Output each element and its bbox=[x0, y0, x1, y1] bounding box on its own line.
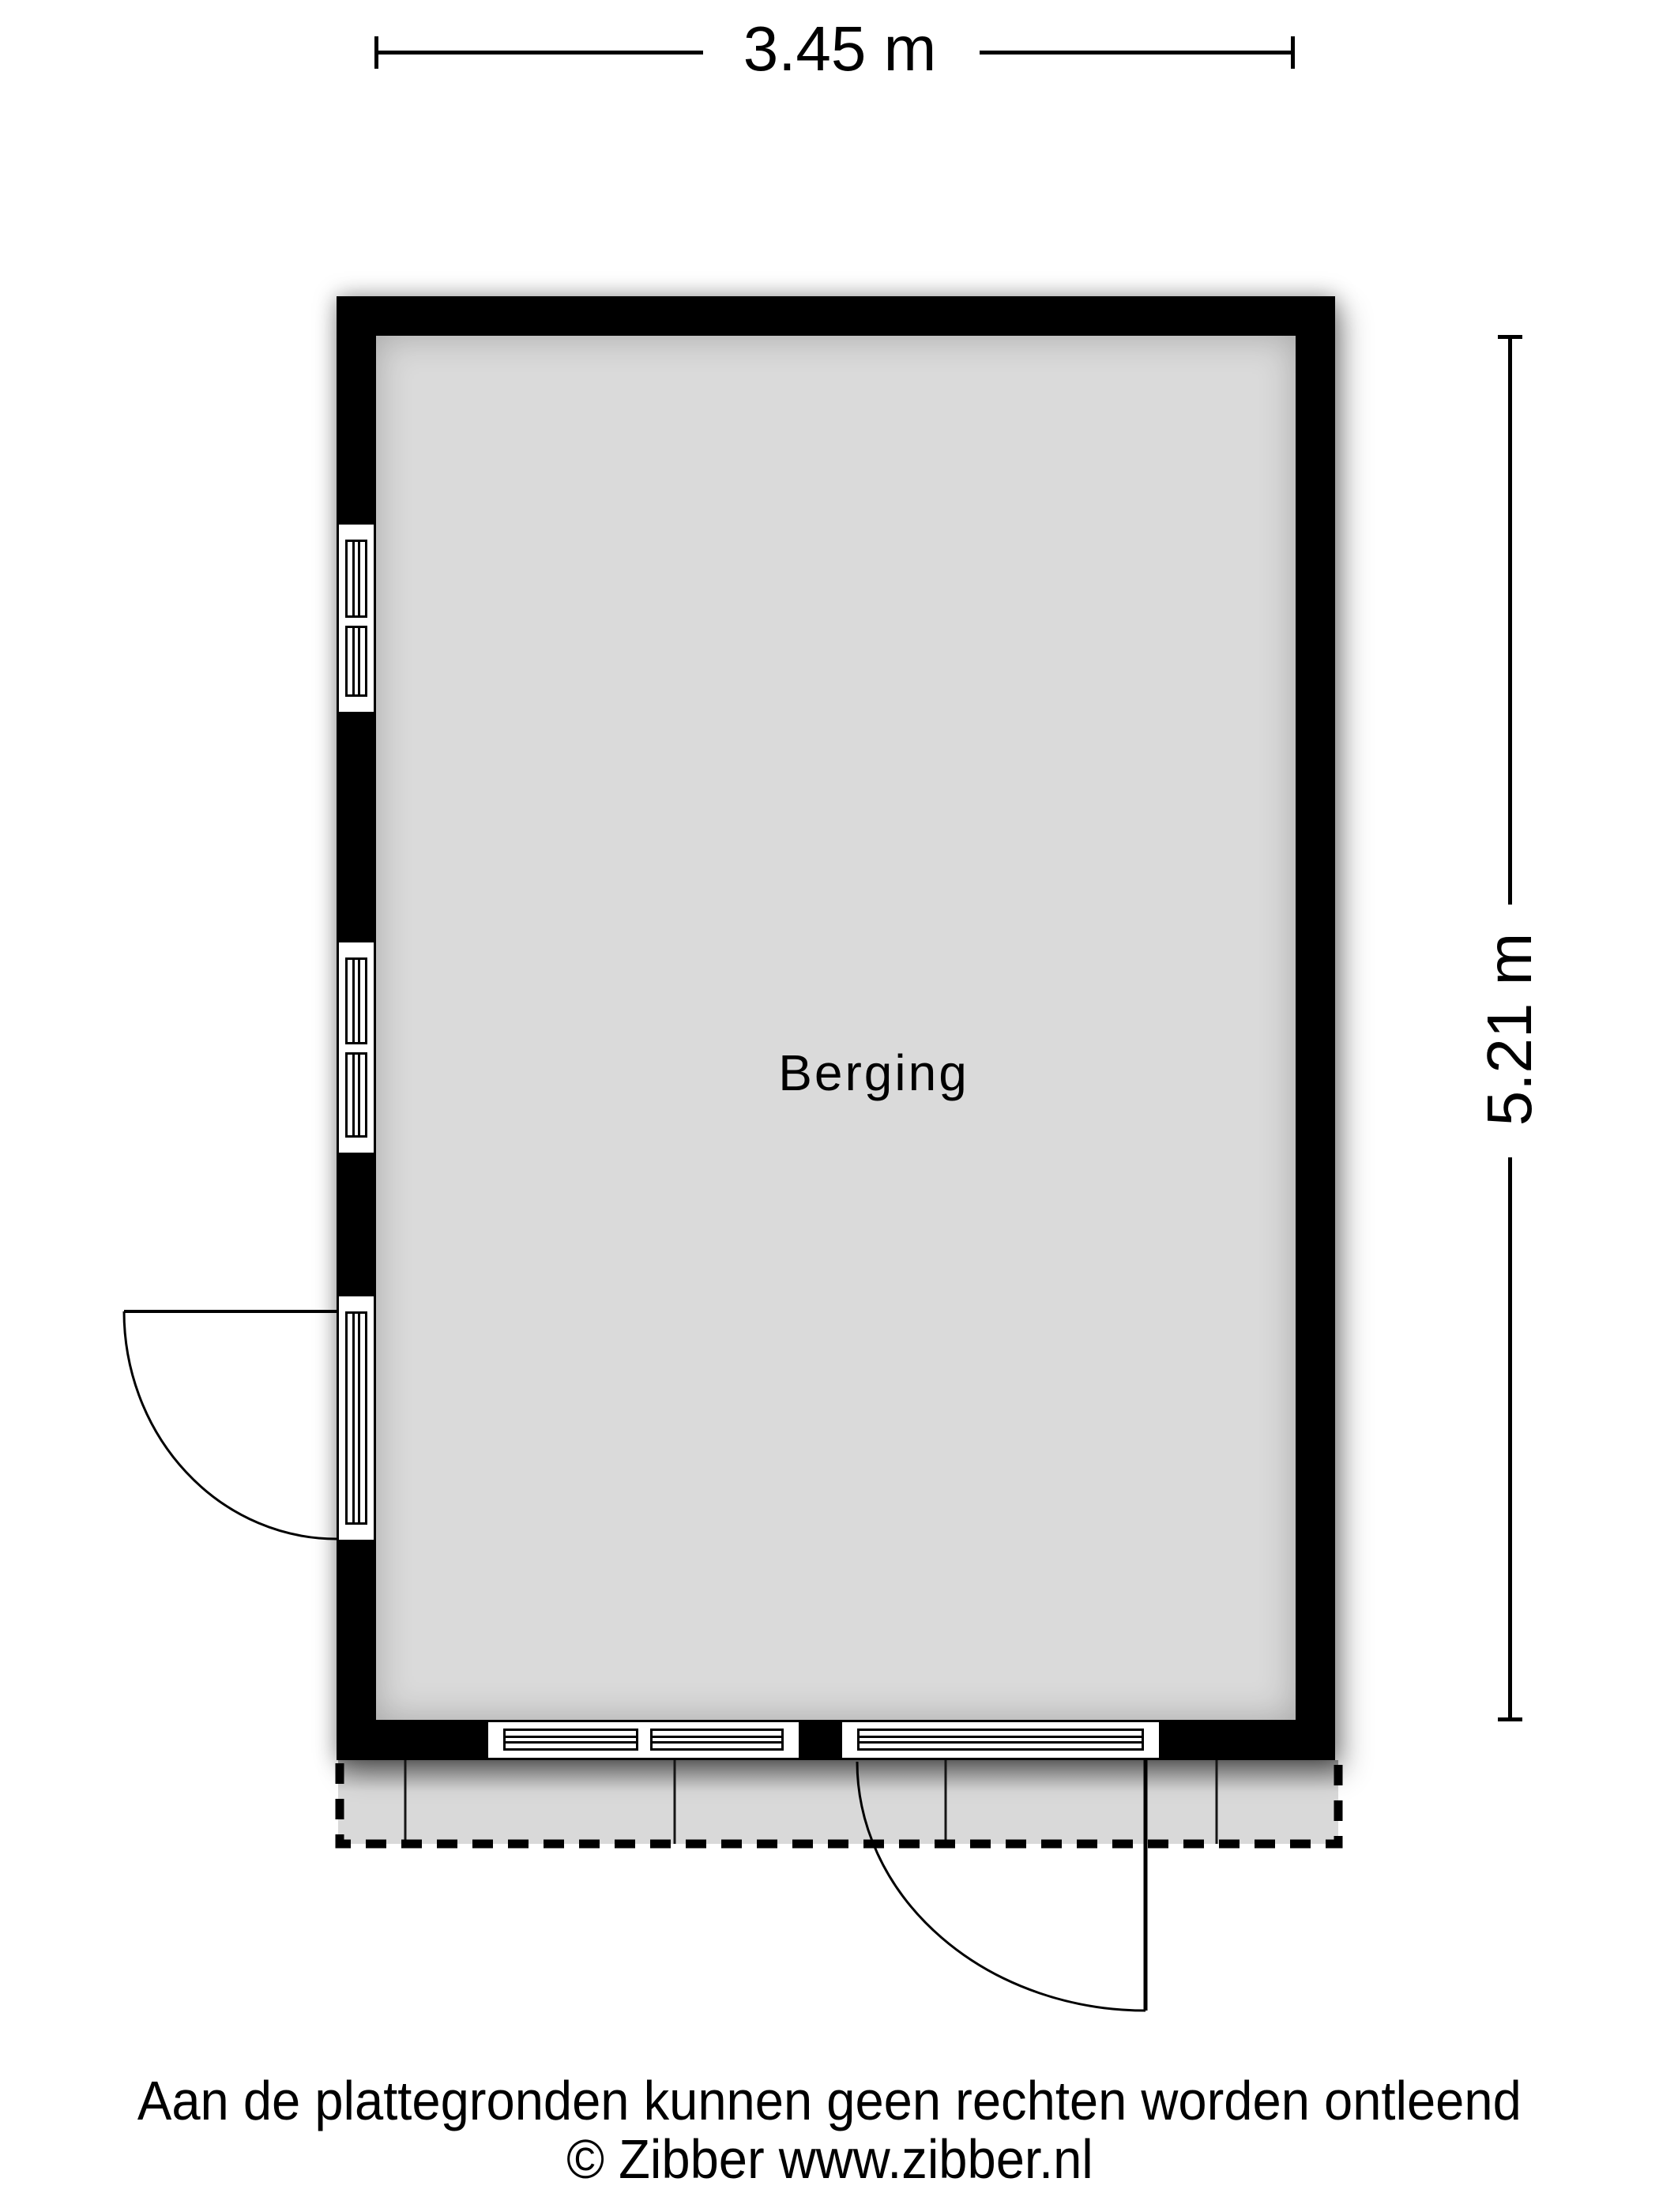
copyright-text: © Zibber www.zibber.nl bbox=[0, 2130, 1659, 2188]
top-dimension-line-right bbox=[980, 51, 1293, 55]
room-label: Berging bbox=[778, 1044, 969, 1102]
right-dimension-tick-bottom bbox=[1498, 1717, 1522, 1721]
door-glass bbox=[857, 1729, 1144, 1751]
window-glass bbox=[345, 540, 367, 618]
window-glass bbox=[345, 626, 367, 697]
left-door-frame bbox=[337, 1294, 376, 1542]
bottom-door-frame bbox=[840, 1720, 1161, 1760]
door-glass bbox=[345, 1311, 367, 1525]
window-glass bbox=[650, 1729, 784, 1751]
floorplan-canvas: 3.45 m 5.21 m Berging bbox=[0, 0, 1659, 2212]
bottom-window bbox=[486, 1720, 801, 1760]
footer: Aan de plattegronden kunnen geen rechten… bbox=[0, 2071, 1659, 2188]
right-dimension-tick-top bbox=[1498, 335, 1522, 339]
width-dimension-label: 3.45 m bbox=[743, 13, 937, 85]
left-window-1 bbox=[337, 522, 376, 714]
window-glass bbox=[345, 1052, 367, 1138]
window-glass bbox=[345, 957, 367, 1044]
left-door-swing bbox=[124, 1311, 337, 1539]
window-glass bbox=[503, 1729, 638, 1751]
terrace-paving bbox=[338, 1760, 1338, 1844]
top-dimension-tick-right bbox=[1291, 36, 1295, 69]
height-dimension-label: 5.21 m bbox=[1473, 933, 1546, 1127]
top-dimension-tick-left bbox=[374, 36, 378, 69]
top-dimension-line-left bbox=[376, 51, 703, 55]
disclaimer-text: Aan de plattegronden kunnen geen rechten… bbox=[0, 2071, 1659, 2130]
building-walls: Berging bbox=[337, 296, 1335, 1760]
room-floor: Berging bbox=[376, 336, 1296, 1720]
right-dimension-line-bottom bbox=[1508, 1157, 1512, 1721]
right-dimension-line-top bbox=[1508, 337, 1512, 905]
left-window-2 bbox=[337, 940, 376, 1155]
